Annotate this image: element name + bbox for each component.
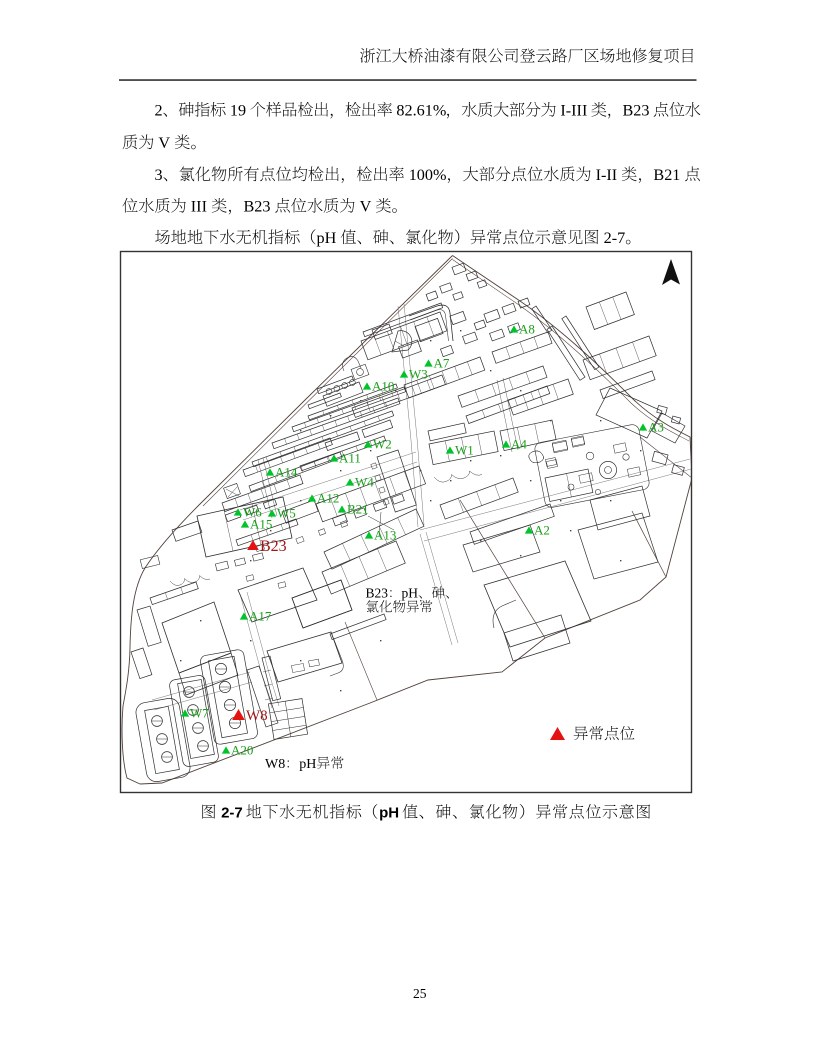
- svg-text:pH: pH: [379, 805, 399, 822]
- svg-text:A11: A11: [339, 451, 361, 466]
- svg-text:A8: A8: [519, 322, 535, 337]
- svg-text:3: 3: [155, 166, 163, 184]
- svg-text:A10: A10: [372, 379, 394, 394]
- svg-text:W8: W8: [246, 708, 268, 724]
- svg-text:W1: W1: [455, 443, 474, 458]
- svg-text:B23: B23: [244, 198, 271, 216]
- svg-text:W5: W5: [277, 506, 296, 521]
- svg-text:W2: W2: [373, 437, 392, 452]
- svg-text:B21: B21: [347, 502, 369, 517]
- svg-text:W7: W7: [190, 706, 209, 721]
- svg-text:A2: A2: [534, 523, 550, 538]
- svg-text:pH: pH: [317, 229, 337, 247]
- svg-text:A12: A12: [317, 491, 339, 506]
- svg-text:I-II: I-II: [596, 166, 618, 184]
- svg-text:2-7: 2-7: [604, 229, 626, 247]
- svg-text:B23: B23: [623, 102, 650, 120]
- svg-text:III: III: [191, 198, 207, 216]
- svg-text:2-7: 2-7: [221, 805, 243, 822]
- svg-text:A13: A13: [374, 528, 396, 543]
- svg-text:B23: B23: [366, 586, 389, 601]
- svg-text:B23: B23: [260, 538, 287, 555]
- svg-text:pH: pH: [299, 757, 316, 772]
- svg-text:W3: W3: [409, 367, 428, 382]
- svg-text:100%: 100%: [409, 166, 447, 184]
- svg-text:A20: A20: [231, 743, 253, 758]
- svg-text:pH: pH: [402, 586, 419, 601]
- svg-text:82.61%: 82.61%: [396, 102, 446, 120]
- svg-text:A3: A3: [648, 420, 664, 435]
- svg-text:A17: A17: [249, 609, 272, 624]
- svg-text:A15: A15: [250, 517, 272, 532]
- svg-text:W8: W8: [265, 757, 285, 772]
- svg-text:25: 25: [413, 986, 427, 1001]
- svg-text:A14: A14: [275, 465, 298, 480]
- svg-text:W4: W4: [355, 475, 374, 490]
- svg-text:V: V: [158, 134, 170, 152]
- svg-text:A4: A4: [511, 437, 527, 452]
- svg-text:I-III: I-III: [560, 102, 587, 120]
- svg-text:V: V: [360, 198, 372, 216]
- svg-text:19: 19: [230, 102, 246, 120]
- svg-text:A7: A7: [434, 356, 450, 371]
- svg-text:2: 2: [155, 102, 163, 120]
- svg-text:B21: B21: [653, 166, 680, 184]
